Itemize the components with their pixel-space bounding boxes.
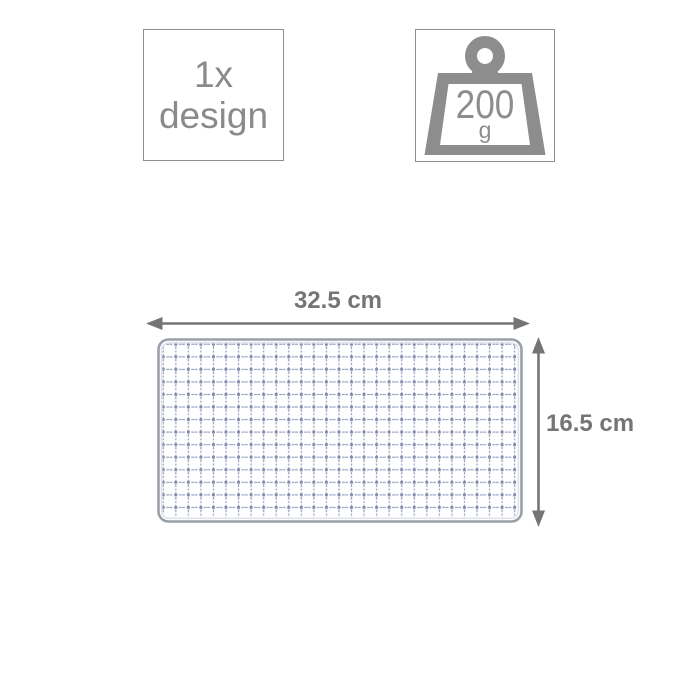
design-count-text: 1x design	[159, 54, 268, 137]
arrowhead-right-icon	[514, 317, 531, 330]
mesh-grid	[163, 344, 518, 518]
weight-badge: 200 g	[415, 29, 555, 162]
design-label-text: design	[159, 95, 268, 136]
height-dimension-label: 16.5 cm	[546, 411, 634, 437]
width-dimension-label: 32.5 cm	[146, 288, 530, 314]
mesh-grate-graphic	[157, 338, 523, 523]
weight-unit: g	[479, 117, 492, 143]
product-image-mesh-grate	[157, 338, 523, 523]
height-dimension-arrow	[530, 337, 547, 527]
weight-icon: 200 g	[423, 34, 547, 158]
design-count-badge: 1x design	[143, 29, 284, 161]
design-quantity-text: 1x	[159, 54, 268, 95]
arrowhead-left-icon	[146, 317, 163, 330]
width-dimension-arrow	[146, 313, 530, 334]
product-dimension-diagram: 1x design 200 g	[0, 0, 700, 700]
arrowhead-up-icon	[532, 337, 545, 354]
arrowhead-down-icon	[532, 511, 545, 528]
